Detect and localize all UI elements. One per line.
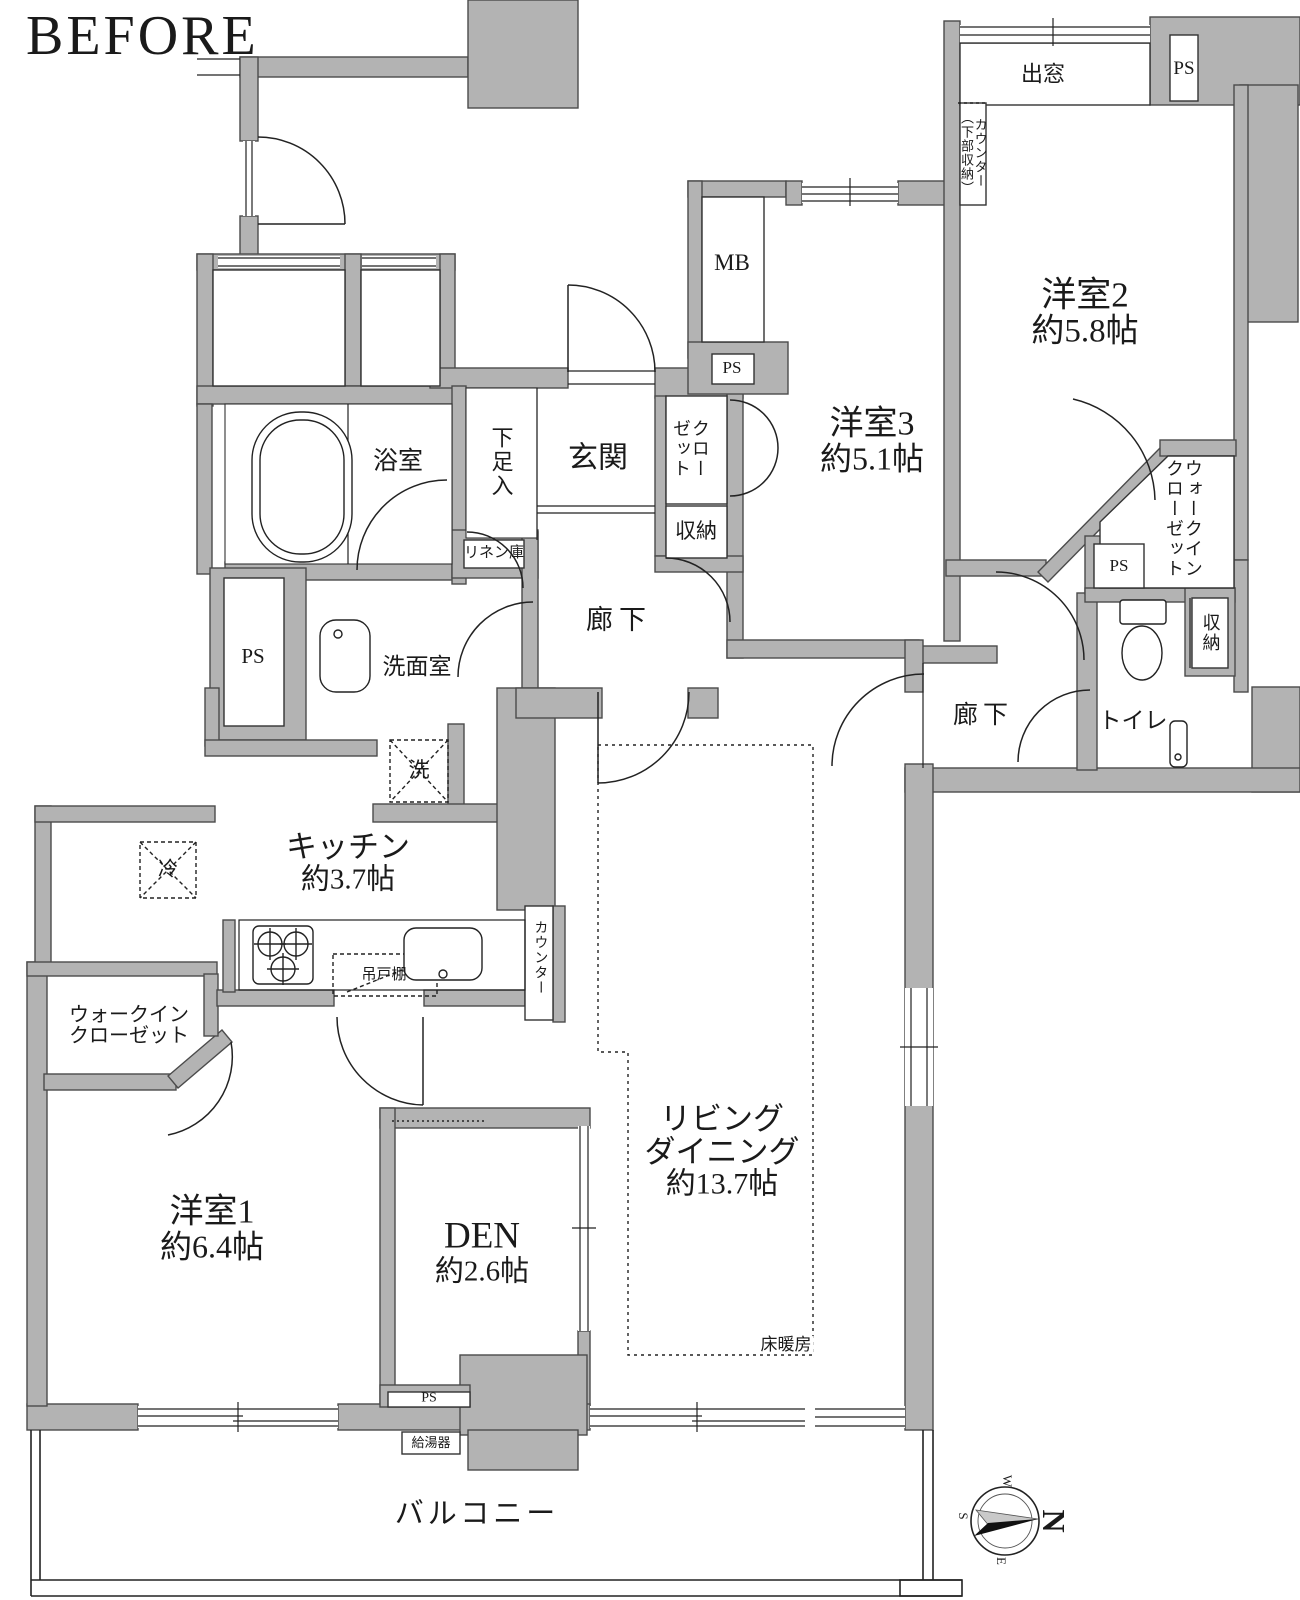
- wall: [35, 806, 215, 822]
- washroom-sink: [320, 620, 370, 692]
- room3-size: 約5.1帖: [820, 442, 924, 476]
- den-label: DEN 約2.6帖: [435, 1217, 529, 1286]
- compass-e-label: E: [994, 1557, 1008, 1565]
- toilet-bowl: [1122, 626, 1162, 680]
- door-arc-living-left: [598, 692, 689, 783]
- wall: [197, 404, 212, 574]
- wall: [497, 688, 555, 910]
- corridor-label-2: 廊下: [953, 703, 1013, 729]
- wall: [424, 990, 525, 1006]
- counter-storage-label: カウンター（下部収納）: [959, 107, 986, 199]
- living-size: 約13.7帖: [666, 1169, 779, 1201]
- wall: [205, 688, 219, 746]
- wall: [240, 57, 468, 77]
- wall: [345, 254, 361, 386]
- room2-label: 洋室2 約5.8帖: [1031, 277, 1138, 348]
- wall: [1234, 560, 1248, 692]
- page-title: BEFORE: [26, 4, 259, 68]
- ps-label-top-right: PS: [1173, 59, 1194, 79]
- wall: [44, 1074, 176, 1090]
- room1-label: 洋室1 約6.4帖: [160, 1194, 264, 1263]
- wall: [917, 646, 997, 663]
- kitchen-size: 約3.7帖: [301, 864, 395, 894]
- wall: [516, 688, 602, 718]
- linen-label: リネン庫: [464, 546, 524, 562]
- wall: [727, 640, 919, 658]
- wall: [27, 1404, 138, 1430]
- hanging-cabinet-label: 吊戸棚: [361, 968, 406, 984]
- compass-w-label: W: [1000, 1475, 1014, 1487]
- storage-label-hall: 収納: [675, 520, 717, 542]
- floor-plan-drawing: [0, 0, 1300, 1600]
- door-arc-entrance: [568, 285, 655, 372]
- door-slit: [243, 141, 255, 216]
- wall: [905, 768, 1300, 792]
- door-arc-porch: [258, 137, 345, 224]
- kitchen-name: キッチン: [286, 832, 410, 865]
- wall: [1077, 593, 1097, 770]
- room2-name: 洋室2: [1041, 277, 1129, 314]
- wic-left-line2: クローゼット: [69, 1026, 189, 1047]
- wall: [688, 181, 702, 358]
- floor-heating-label: 床暖房: [759, 1336, 814, 1354]
- bay-window-glass: [960, 25, 1150, 43]
- wall: [223, 920, 235, 992]
- wall: [380, 1108, 395, 1408]
- wall: [240, 57, 258, 141]
- wall: [946, 560, 1046, 576]
- ps-label-mb: PS: [723, 359, 742, 377]
- storage-label-right: 収納: [1201, 609, 1220, 657]
- floor-plan: BEFORE 出窓 PS カウンター（下部収納） 洋室2 約5.8帖 MB PS…: [0, 0, 1300, 1600]
- compass: [971, 1487, 1039, 1555]
- wall: [688, 181, 786, 197]
- ps-label-right: PS: [1110, 557, 1129, 575]
- shoe-box-label: 下足入: [489, 419, 512, 505]
- wall: [655, 396, 666, 556]
- wall: [205, 740, 377, 756]
- corridor-label-1: 廊下: [586, 606, 652, 634]
- wall: [688, 688, 718, 718]
- room3-name: 洋室3: [829, 406, 914, 442]
- wall: [430, 368, 568, 388]
- kitchen-label: キッチン 約3.7帖: [286, 832, 410, 895]
- wall: [35, 806, 51, 966]
- room1-size: 約6.4帖: [160, 1230, 264, 1264]
- closet-label: クローゼット: [671, 417, 709, 481]
- washer-label: 洗: [409, 759, 430, 781]
- porch-room: [213, 270, 345, 386]
- bay-window-label: 出窓: [1021, 62, 1065, 85]
- wall: [1160, 440, 1236, 456]
- toilet-tank: [1120, 600, 1166, 624]
- genkan-label: 玄関: [568, 442, 628, 474]
- porch-room: [361, 270, 440, 386]
- pillar: [468, 0, 578, 108]
- wall: [468, 1430, 578, 1470]
- wall: [27, 962, 217, 976]
- den-size: 約2.6帖: [435, 1256, 529, 1286]
- den-name: DEN: [444, 1217, 520, 1256]
- wall: [1234, 85, 1248, 560]
- compass-s-label: S: [956, 1512, 970, 1519]
- room2-size: 約5.8帖: [1031, 314, 1138, 349]
- living-line1: リビング: [660, 1104, 784, 1137]
- wall: [197, 254, 213, 406]
- door-arc-room3: [996, 572, 1084, 660]
- wall: [460, 1355, 587, 1435]
- room3-label: 洋室3 約5.1帖: [820, 406, 924, 475]
- wic-left-label: ウォークイン クローゼット: [69, 1005, 189, 1047]
- wall: [27, 962, 47, 1406]
- washroom-label: 洗面室: [383, 655, 452, 679]
- wall: [905, 640, 923, 692]
- counter-label: カウンター: [532, 915, 547, 999]
- room1-name: 洋室1: [169, 1194, 254, 1230]
- water-heater-label: 給湯器: [411, 1436, 450, 1450]
- wall: [786, 181, 802, 205]
- wall: [553, 906, 565, 1022]
- compass-n-label: N: [1036, 1509, 1070, 1532]
- floor-heating-area: [598, 745, 813, 1355]
- living-line2: ダイニング: [645, 1136, 800, 1169]
- ps-label-left: PS: [241, 645, 264, 667]
- fridge-label: 冷: [158, 860, 178, 881]
- kitchen-faucet: [439, 970, 447, 978]
- door-arc-room1: [337, 1017, 423, 1105]
- wall: [448, 724, 464, 810]
- wic-right-label: ウォークインクローゼット: [1164, 455, 1202, 583]
- bathtub-inner: [260, 420, 344, 554]
- wall: [380, 1108, 590, 1128]
- washroom-faucet: [334, 630, 342, 638]
- bath-label: 浴室: [373, 449, 423, 475]
- living-label: リビング ダイニング 約13.7帖: [645, 1104, 800, 1201]
- balcony-label: バルコニー: [395, 1499, 559, 1529]
- toilet-label: トイレ: [1099, 709, 1168, 733]
- mb-label: MB: [714, 251, 750, 275]
- wall: [197, 386, 455, 404]
- wic-left-line1: ウォークイン: [69, 1005, 189, 1026]
- ps-label-bottom: PS: [421, 1392, 437, 1407]
- toilet-paper-dot: [1175, 754, 1181, 760]
- wall: [204, 974, 218, 1036]
- wall: [944, 21, 960, 641]
